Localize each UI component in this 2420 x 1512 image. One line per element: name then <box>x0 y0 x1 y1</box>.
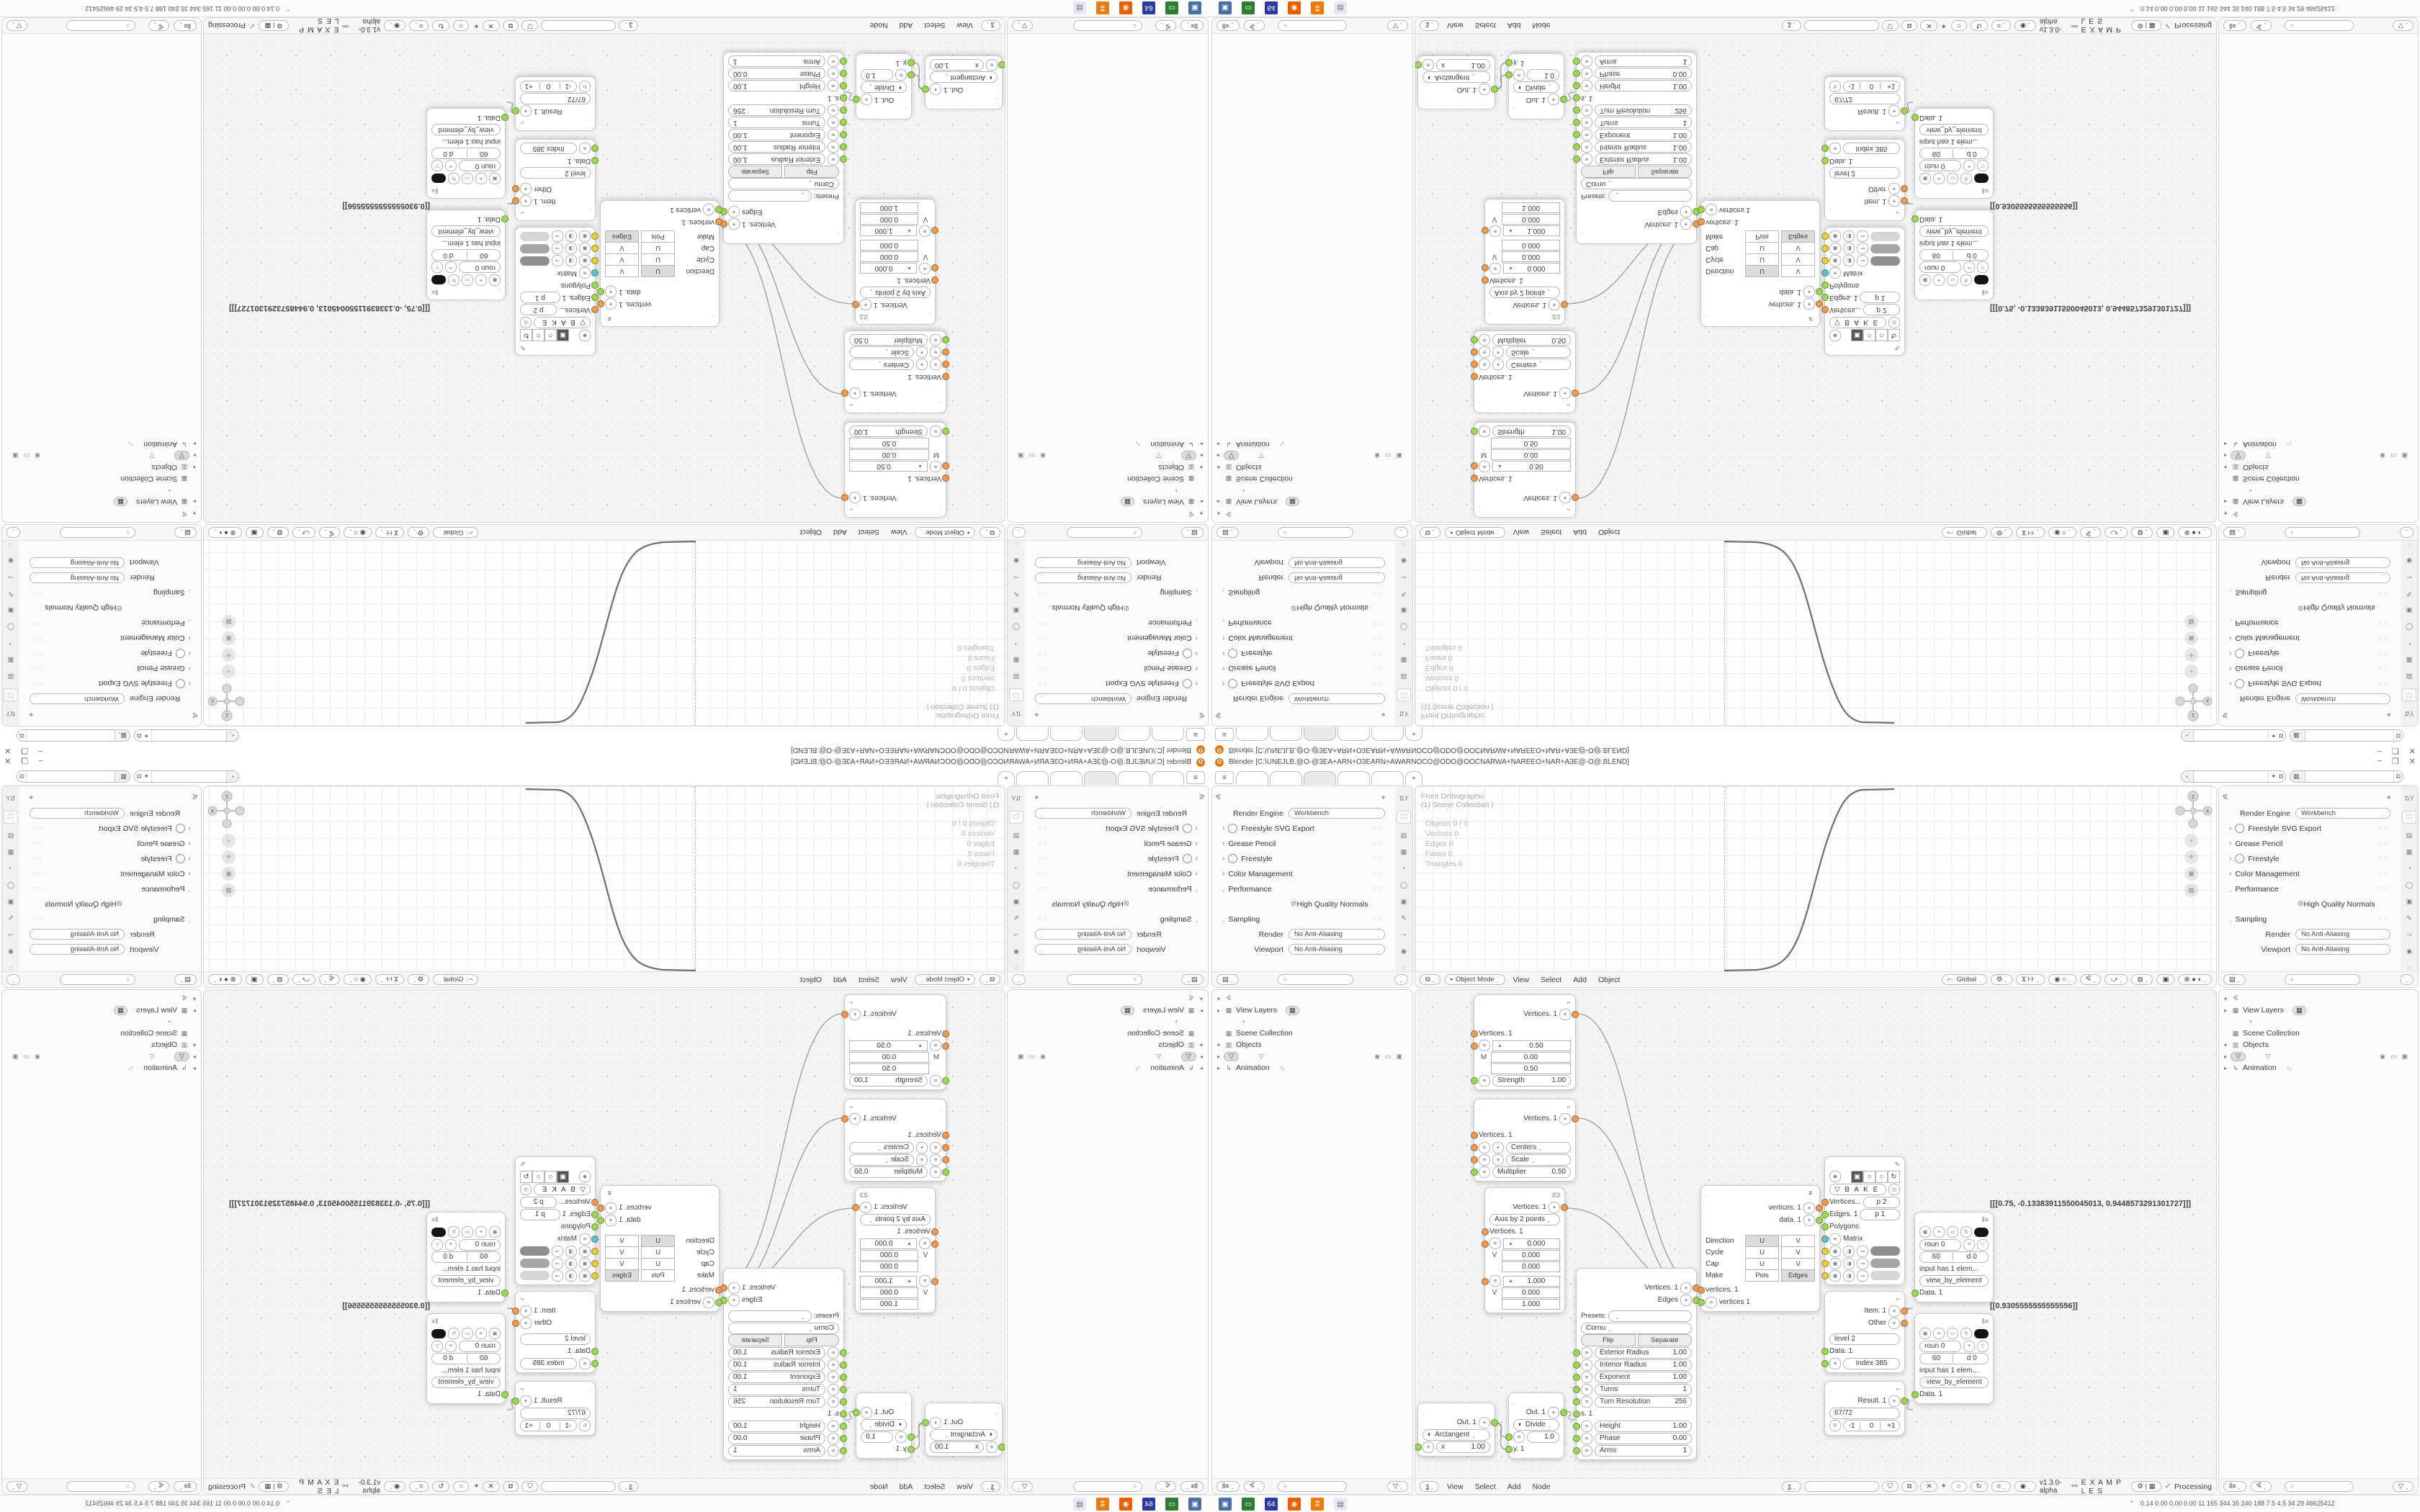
frame-mini-icon[interactable]: ▭ <box>462 274 473 286</box>
list-item-node[interactable]: ˯⌐Item. 1▾Other▾level 2Data. 1≋Index 385 <box>1824 1291 1905 1373</box>
make-edges-button[interactable]: Edges <box>605 1269 639 1282</box>
node-menu-view[interactable]: View <box>953 1482 977 1491</box>
select-dropdown[interactable]: Scale˯ <box>849 347 914 359</box>
formula-arctangent-node[interactable]: ˯Out. 1▾◐Arctangent˯≋x1.00 <box>1417 55 1495 109</box>
navigation-gizmo[interactable]: ZX <box>2173 789 2216 832</box>
properties-tab-icon[interactable]: ✎ <box>1010 590 1023 598</box>
search-input[interactable]: ⌕ <box>1067 527 1142 538</box>
outliner-item-view-layers[interactable]: ▸▦View Layers▦ <box>1214 496 1411 508</box>
section-freestyle[interactable]: ›Freestyle⁙⁙ <box>2222 646 2398 661</box>
node-socket-l[interactable] <box>591 1248 599 1255</box>
properties-tab-icon[interactable]: ◯ <box>4 881 17 889</box>
bake-button[interactable]: ▽B A K E <box>1829 317 1886 328</box>
overlay-toggle-button[interactable]: ⤻ ˯ <box>292 974 315 985</box>
node-socket-l[interactable] <box>1698 218 1705 225</box>
uv-connection-node[interactable]: ˯≢vertices. 1▾data. 1▾DirectionUVCycleUV… <box>1700 1185 1820 1312</box>
filter-mini-icon[interactable]: ▽ <box>431 161 443 172</box>
node-socket-l[interactable] <box>1573 58 1580 65</box>
node-menu-node[interactable]: Node <box>1528 1482 1554 1491</box>
make-pols-button[interactable]: Pols <box>1745 231 1779 243</box>
collapse-chevron-icon[interactable]: ˯ <box>498 188 501 194</box>
node-socket-l[interactable] <box>840 58 847 65</box>
viewport-menu-object[interactable]: Object <box>1595 528 1623 537</box>
number-field[interactable]: ▲0.000 <box>860 264 917 274</box>
view-by-element-button[interactable]: view_by_element <box>431 226 501 238</box>
viewlayer-selector-field[interactable]: ▦˯ ⧉ <box>17 770 130 783</box>
number-field[interactable]: Phase0.00 <box>728 68 825 80</box>
node-socket-l[interactable] <box>591 269 599 276</box>
cone-object-button[interactable]: ▽ <box>2231 1052 2246 1061</box>
editor-type-button[interactable]: ▤ ˯ <box>2223 527 2246 538</box>
tree-select-button[interactable]: ʓ ˯ <box>619 1481 638 1492</box>
section-grease-pencil[interactable]: ›Grease Pencil⁙⁙ <box>22 661 198 676</box>
outliner-item-scene-collection[interactable]: ▦Scene Collection <box>2220 473 2416 485</box>
value-field[interactable]: 67/72 <box>1829 94 1900 105</box>
properties-tab-icon[interactable]: ⤳ <box>1010 574 1023 582</box>
number-field[interactable]: ▲0.50 <box>1492 1040 1571 1051</box>
outliner-item-objects[interactable]: ▾▥Objects <box>2220 1039 2416 1050</box>
number-field[interactable]: Turns1 <box>728 117 825 129</box>
number-field[interactable]: 0.000 <box>860 1261 918 1272</box>
outliner-search-input[interactable]: ⌕ <box>2285 20 2354 31</box>
up-toggle-button[interactable]: ▲ <box>1508 1241 1513 1246</box>
split-left-value[interactable]: 60 <box>467 1354 501 1362</box>
node-socket-l[interactable] <box>501 215 508 222</box>
cone-object-button[interactable]: ▽ <box>174 451 189 461</box>
minimize-button[interactable]: − <box>2377 757 2381 766</box>
sampling-row-select[interactable]: No Anti-Aliasing˯ <box>2295 944 2390 955</box>
grid-toggle-icon[interactable]: ▦ <box>2184 883 2198 897</box>
collapse-chevron-icon[interactable]: ˯ <box>1479 999 1481 1006</box>
select-dropdown[interactable]: Centers˯ <box>849 1142 914 1153</box>
editor-type-button[interactable]: ▤ ˯ <box>1181 974 1204 985</box>
filter-mini-icon[interactable]: ▽ <box>431 1239 443 1251</box>
update-cycle-button[interactable]: ↻ <box>1971 1481 1988 1492</box>
collapse-chevron-icon[interactable]: ˯ <box>498 289 501 296</box>
node-socket-l[interactable] <box>1821 294 1829 301</box>
node-editor[interactable]: [[[0.75, -0.13383911550045013, 0.9448573… <box>203 17 1005 523</box>
sampling-row-select[interactable]: No Anti-Aliasing˯ <box>1035 557 1131 568</box>
search-input[interactable]: ⌕ <box>2285 527 2360 538</box>
dropdown-mini-button[interactable]: ▾ <box>916 359 928 371</box>
make-pols-button[interactable]: Pols <box>1745 1269 1779 1282</box>
scene-selector-field[interactable]: ◔˯ ✦⧉ <box>134 729 239 742</box>
properties-tab-icon[interactable]: 🗀 <box>2403 689 2416 701</box>
camera-icon[interactable]: ▣ <box>1018 1053 1024 1061</box>
collapse-chevron-icon[interactable]: ˯ <box>939 402 941 409</box>
dropdown-mini-button[interactable]: ▾ <box>728 207 740 218</box>
toggle-circle[interactable] <box>1183 854 1192 863</box>
value-field[interactable]: 67/72 <box>520 94 591 105</box>
outliner-item[interactable]: ▸▽▽◉▭▣ <box>4 1050 200 1062</box>
number-field[interactable]: Exponent1.00 <box>1595 130 1692 141</box>
options-chevron-button[interactable]: ˯ <box>6 527 20 538</box>
node-socket-l[interactable] <box>840 143 847 150</box>
monitor-icon[interactable]: ▭ <box>1029 1053 1036 1061</box>
number-field[interactable]: 0.000 <box>1502 240 1560 251</box>
list-mini-icon[interactable]: ≡ <box>1933 274 1945 286</box>
node-socket-r[interactable] <box>1572 1115 1579 1122</box>
uv-connection-node[interactable]: ˯≢vertices. 1▾data. 1▾DirectionUVCycleUV… <box>1700 200 1820 327</box>
grid-snap-button[interactable]: ⌗ ˯ <box>1991 1481 2011 1492</box>
number-field[interactable]: Turns1 <box>1595 117 1692 129</box>
options-chevron-button[interactable]: ˯ <box>6 974 20 985</box>
shading-select-button[interactable]: ✎̊ ˯ <box>2080 527 2102 538</box>
toggle-circle[interactable] <box>2235 679 2244 688</box>
outliner-item[interactable]: ▸▽▽◉▭▣ <box>1009 450 1206 462</box>
properties-tab-icon[interactable]: ▣ <box>4 898 17 906</box>
node-socket-l[interactable] <box>1698 1299 1705 1306</box>
viewport-content[interactable]: Front Orthographic(1) Scene Collection |… <box>1415 786 2216 971</box>
list-mini-icon[interactable]: ≡ <box>445 161 457 172</box>
node-socket-l[interactable] <box>591 294 599 301</box>
scale-node[interactable]: ˯⌐Vertices. 1▾Vertices. 1≋▾Centers˯≋▾Sca… <box>1474 1099 1576 1182</box>
up-toggle-button[interactable]: ▲ <box>1508 229 1513 234</box>
viewport-content[interactable]: Front Orthographic(1) Scene Collection |… <box>204 786 1005 971</box>
section-freestyle-svg-export[interactable]: ›Freestyle SVG Export⁙⁙ <box>1215 676 1392 691</box>
number-field[interactable]: ▲0.50 <box>849 462 928 472</box>
viewport-3d[interactable]: Front Orthographic(1) Scene Collection |… <box>203 524 1005 726</box>
dropdown-mini-button[interactable]: ▾ <box>1479 1417 1490 1428</box>
viewlayer-badge-button[interactable]: ▦ <box>1121 498 1134 507</box>
close-button[interactable]: ✕ <box>2409 746 2416 755</box>
list-mini-icon[interactable]: ≡ <box>1963 1239 1975 1251</box>
options-chevron-button[interactable]: ˯ <box>1394 974 1408 985</box>
number-field[interactable]: 0.000 <box>860 252 918 263</box>
input-value-pill[interactable]: Index 385 <box>1843 143 1900 155</box>
number-field[interactable]: Phase0.00 <box>728 1433 825 1444</box>
properties-tab-icon[interactable]: ▤ <box>2403 832 2416 840</box>
scene-selector-field[interactable]: ◔˯ ✦⧉ <box>2181 770 2286 783</box>
copy-button[interactable]: ⧉ <box>503 20 519 31</box>
dropdown-mini-button[interactable]: ▾ <box>1803 299 1815 310</box>
refresh-button[interactable]: ↻ <box>1888 1171 1900 1183</box>
number-field[interactable]: ▲1.000 <box>860 226 917 237</box>
stepper-plus1-button[interactable]: +1 <box>521 83 537 91</box>
node-socket-l[interactable] <box>591 1272 599 1279</box>
firefox-app-icon[interactable]: ◉ <box>1119 1 1132 14</box>
collapse-chevron-icon[interactable]: ˯ <box>837 233 839 240</box>
tree-select-button[interactable]: ʓ ˯ <box>619 20 638 31</box>
viewport-menu-view[interactable]: View <box>887 528 911 537</box>
properties-tab-icon[interactable]: ✎ <box>1010 914 1023 922</box>
node-socket-r[interactable] <box>922 1419 929 1426</box>
properties-tab-icon[interactable]: ⤳ <box>1397 574 1410 582</box>
editor-type-button[interactable]: ʓ ˯ <box>981 1481 1000 1492</box>
outliner-item[interactable]: ◔ <box>2220 485 2416 496</box>
dropdown-mini-button[interactable]: ▾ <box>728 1295 740 1306</box>
node-socket-l[interactable] <box>907 1446 915 1453</box>
collapse-chevron-icon[interactable]: ˯ <box>995 1408 998 1414</box>
outliner-item-animation[interactable]: ▸↳Animation⁴₂ <box>1009 438 1206 450</box>
properties-tab-icon[interactable]: ⇅Y <box>2403 795 2416 803</box>
monitor-icon[interactable]: ▭ <box>1385 452 1391 460</box>
shading-select-button[interactable]: ✎̊ ˯ <box>319 974 341 985</box>
formula-arctangent-node[interactable]: ˯Out. 1▾◐Arctangent˯≋x1.00 <box>1417 1403 1495 1457</box>
node-socket-l[interactable] <box>1471 1132 1478 1139</box>
outliner-item[interactable]: ◔ <box>4 485 200 496</box>
pin-icon[interactable]: ✦ <box>2271 773 2277 780</box>
loop-mini-icon[interactable]: ↻ <box>1829 81 1841 92</box>
direction-u-button[interactable]: U <box>641 266 675 278</box>
section-performance[interactable]: ˯Performance⁙⁙ <box>1028 881 1205 896</box>
dropdown-mini-button[interactable]: ▾ <box>1680 1282 1692 1294</box>
number-field[interactable]: Interior Radius1.00 <box>1595 142 1692 153</box>
node-socket-l[interactable] <box>1482 276 1489 284</box>
node-socket-l[interactable] <box>840 1410 847 1418</box>
tree-name-input[interactable] <box>1804 20 1879 31</box>
rounding-field[interactable]: roun 0 <box>459 262 501 274</box>
circle-button[interactable]: ○ <box>1863 1171 1875 1183</box>
color-swatch-black[interactable] <box>1974 276 1989 285</box>
expand-chevron-icon[interactable]: ⌃ <box>2129 4 2135 12</box>
node-menu-add[interactable]: Add <box>1504 1482 1525 1491</box>
toggle-circle[interactable] <box>2235 824 2244 833</box>
outliner-item[interactable]: ◔ <box>1214 485 1411 496</box>
copy-icon[interactable]: ⧉ <box>19 732 24 739</box>
node-editor[interactable]: [[[0.75, -0.13383911550045013, 0.9448573… <box>1415 17 2217 523</box>
render-engine-select[interactable]: Workbench˯ <box>30 693 125 704</box>
node-socket-l[interactable] <box>998 61 1005 68</box>
unlink-button[interactable]: ✕ <box>1920 20 1937 31</box>
cap-u-button[interactable]: U <box>1745 243 1779 255</box>
gear-grid-buttons[interactable]: ⚙ | ▦ <box>2131 20 2161 31</box>
number-field[interactable]: Arms1 <box>728 56 825 68</box>
viewport-menu-select[interactable]: Select <box>1537 976 1565 984</box>
monitor-icon[interactable]: ▭ <box>1029 452 1036 460</box>
sampling-row-select[interactable]: No Anti-Aliasing˯ <box>2295 557 2390 568</box>
workspace-tab[interactable] <box>1371 771 1404 785</box>
eye-icon[interactable]: ◉ <box>1374 452 1380 460</box>
stethoscope-viewer-node-1[interactable]: ˯⦀≡▣≡▭↻roun 0≡▽60d 0input has 1 elem...v… <box>1914 1212 1994 1302</box>
direction-v-button[interactable]: V <box>605 1235 639 1247</box>
outliner-item-view-layers[interactable]: ▸▦View Layers▦ <box>1214 1004 1411 1016</box>
camera-icon[interactable]: ▣ <box>2401 1053 2408 1061</box>
up-toggle-button[interactable]: ▲ <box>918 464 923 469</box>
properties-tab-icon[interactable]: 🗀 <box>4 689 17 701</box>
properties-tab-icon[interactable]: ⤳ <box>1397 931 1410 939</box>
dropdown-mini-button[interactable]: ▾ <box>1559 388 1571 400</box>
refresh-mini-icon[interactable]: ↻ <box>1960 173 1972 184</box>
overlay-toggle-button[interactable]: ⤻ ˯ <box>2105 527 2128 538</box>
refresh-button[interactable]: ↻ <box>520 330 532 342</box>
node-socket-l[interactable] <box>907 71 915 78</box>
value-field[interactable]: ˯ <box>1608 191 1692 202</box>
cube-button[interactable]: ▣ <box>557 1171 569 1183</box>
properties-tab-icon[interactable]: ⇅Y <box>4 709 17 717</box>
list-mini-icon[interactable]: ≡ <box>475 274 487 286</box>
stethoscope-viewer-node-2[interactable]: ˯⦀≡▣≡▭↻roun 0≡▽60d 0input has 1 elem...v… <box>426 108 506 199</box>
split-right-value[interactable]: d 0 <box>1956 150 1989 158</box>
node-socket-r[interactable] <box>1572 1011 1579 1018</box>
properties-tab-icon[interactable]: ▤ <box>1010 832 1023 840</box>
toggle-circle[interactable] <box>176 824 185 833</box>
number-field[interactable]: x1.00 <box>1436 60 1490 71</box>
node-socket-r[interactable] <box>1560 96 1567 103</box>
number-field[interactable]: Exterior Radius1.00 <box>1595 154 1692 166</box>
split-right-value[interactable]: d 0 <box>432 251 465 259</box>
frame-mini-icon[interactable]: ▭ <box>1947 1328 1958 1339</box>
dropdown-mini-button[interactable]: ▾ <box>1548 1407 1559 1418</box>
collapse-chevron-icon[interactable]: ˯ <box>1829 120 1832 127</box>
floppy-64-app-icon[interactable]: 64 <box>1142 1 1155 14</box>
stepper-plus1-button[interactable]: +1 <box>1883 1422 1899 1430</box>
solid-box-button[interactable]: ▣ <box>2156 974 2174 985</box>
split-left-value[interactable]: 60 <box>467 251 501 259</box>
filter-mini-icon[interactable]: ▽ <box>1977 161 1989 172</box>
copy-icon[interactable]: ⧉ <box>137 773 141 780</box>
number-field[interactable]: Strength1.00 <box>1492 426 1571 438</box>
rounding-field[interactable]: roun 0 <box>1919 262 1961 274</box>
dropdown-mini-button[interactable]: ▾ <box>1492 359 1504 371</box>
filter-funnel-button[interactable]: ▽ ˯ <box>2393 1481 2414 1492</box>
collapse-chevron-icon[interactable]: ˯ <box>1489 1192 1492 1199</box>
workspace-tab[interactable] <box>1304 727 1336 741</box>
shading-modes-button[interactable]: ⊕ ● ◐ ˯ <box>208 527 242 538</box>
outliner-item-animation[interactable]: ▸↳Animation⁴₂ <box>1214 438 1411 450</box>
expand-chevron-icon[interactable]: ⌃ <box>285 4 291 12</box>
formula-divide-node[interactable]: ˯Out. 1▾◐Divide˯≋1.0y. 1 <box>856 53 912 120</box>
number-field[interactable]: ▲0.000 <box>1503 264 1560 274</box>
list-mini-icon[interactable]: ≡ <box>1933 173 1945 184</box>
dropdown-mini-button[interactable]: ▾ <box>1680 1295 1692 1306</box>
properties-tab-icon[interactable]: ✎ <box>1397 914 1410 922</box>
filter-mini-icon[interactable]: ▽ <box>1977 262 1989 274</box>
node-socket-l[interactable] <box>1471 1077 1478 1084</box>
firefox-app-icon[interactable]: ◉ <box>1288 1498 1301 1511</box>
node-socket-l[interactable] <box>1482 1228 1489 1236</box>
node-socket-l[interactable] <box>1505 59 1512 66</box>
workspace-tab[interactable] <box>1236 727 1268 741</box>
number-field[interactable]: Multiplier0.50 <box>849 335 928 346</box>
camera-icon[interactable]: ▣ <box>12 452 19 460</box>
collapse-chevron-icon[interactable]: ˯ <box>1829 1386 1832 1392</box>
list-mini-icon[interactable]: ≡ <box>1933 1226 1945 1238</box>
floppy-64-app-icon[interactable]: 64 <box>1265 1 1278 14</box>
frame-mini-icon[interactable]: ▭ <box>462 1328 473 1339</box>
node-socket-l[interactable] <box>715 218 722 225</box>
bake-button[interactable]: ▽B A K E <box>534 317 591 328</box>
list-mini-icon[interactable]: ≡ <box>1933 1328 1945 1339</box>
node-socket-l[interactable] <box>840 70 847 77</box>
toggle-circle[interactable] <box>1228 679 1237 688</box>
stepper-minus1-button[interactable]: -1 <box>560 83 576 91</box>
gear-grid-buttons[interactable]: ⚙ | ▦ <box>259 20 288 31</box>
search-input[interactable]: ⌕ <box>60 974 135 985</box>
loop-mini-icon[interactable]: ↻ <box>1829 1420 1841 1431</box>
sampling-row-select[interactable]: No Anti-Aliasing˯ <box>1289 944 1385 955</box>
number-field[interactable]: Interior Radius1.00 <box>728 1359 825 1371</box>
node-socket-l[interactable] <box>1912 114 1919 121</box>
pin-icon[interactable]: ✦ <box>1381 710 1386 718</box>
node-socket-l[interactable] <box>1821 269 1829 276</box>
dropdown-mini-button[interactable]: ▾ <box>861 94 872 106</box>
orientation-select-button[interactable]: ⌐˒Global˯ <box>433 974 478 985</box>
up-toggle-button[interactable]: ▲ <box>1508 266 1513 271</box>
toggle-circle[interactable] <box>1228 854 1237 863</box>
node-socket-r[interactable] <box>841 390 848 397</box>
properties-tab-icon[interactable]: ◯ <box>1010 881 1023 889</box>
node-socket-l[interactable] <box>1821 1236 1829 1243</box>
notepad-app-icon[interactable]: ▤ <box>1073 1498 1086 1511</box>
camera-icon[interactable]: ▣ <box>2401 452 2408 460</box>
section-performance[interactable]: ˯Performance⁙⁙ <box>2222 616 2398 631</box>
list-item-node[interactable]: ˯⌐Item. 1▾Other▾level 2Data. 1≋Index 385 <box>1824 139 1905 221</box>
high-quality-normals-row[interactable]: ⊘High Quality Normals <box>22 896 198 912</box>
properties-tab-icon[interactable]: ◌ <box>1010 541 1023 549</box>
blank-circle-button[interactable]: ○ <box>453 20 469 31</box>
outliner-item-scene-collection[interactable]: ▦Scene Collection <box>1214 473 1411 485</box>
maximize-button[interactable]: ❐ <box>2392 746 2399 755</box>
viewport-menu-view[interactable]: View <box>1510 528 1533 537</box>
number-field[interactable]: Strength1.00 <box>849 426 928 438</box>
node-socket-r[interactable] <box>1816 1205 1823 1212</box>
number-field[interactable]: 0.50 <box>1491 438 1571 449</box>
window-titlebar[interactable]: Blender [C:\UNEJLB.@O-@3EA+ARN+O3EARN+AW… <box>1210 744 2420 756</box>
value-field[interactable]: ˯ <box>728 191 812 202</box>
dropdown-mini-button[interactable]: ▾ <box>1479 84 1490 96</box>
node-socket-l[interactable] <box>1471 373 1478 380</box>
node-socket-l[interactable] <box>931 1228 938 1236</box>
number-field[interactable]: 1.000 <box>860 203 918 214</box>
node-socket-r[interactable] <box>1901 185 1908 192</box>
node-socket-l[interactable] <box>942 336 949 343</box>
node-socket-r[interactable] <box>1491 86 1498 93</box>
collapse-chevron-icon[interactable]: ˯ <box>498 1318 501 1325</box>
update-cycle-button[interactable]: ↻ <box>432 1481 449 1492</box>
properties-tab-icon[interactable]: ◔ <box>1397 865 1410 873</box>
slider-pill[interactable] <box>520 244 550 253</box>
outliner-item[interactable]: ▸▽▽◉▭▣ <box>2220 450 2416 462</box>
node-editor[interactable]: [[[0.75, -0.13383911550045013, 0.9448573… <box>1415 989 2217 1495</box>
node-socket-l[interactable] <box>840 1349 847 1356</box>
pin-icon[interactable]: ✦ <box>473 1483 479 1490</box>
toggle-circle[interactable] <box>1183 824 1192 833</box>
dropdown-mini-button[interactable]: ▾ <box>1492 1142 1504 1153</box>
number-field[interactable]: 1.0 <box>1527 70 1559 81</box>
viewport-menu-select[interactable]: Select <box>855 976 883 984</box>
number-field[interactable]: Phase0.00 <box>1595 68 1692 80</box>
node-socket-l[interactable] <box>1573 1386 1580 1393</box>
mode-select-button[interactable]: ▪Object Mode˯ <box>1445 974 1505 985</box>
sampling-row-select[interactable]: No Anti-Aliasing˯ <box>30 572 125 583</box>
viewlayer-badge-button[interactable]: ▦ <box>114 498 127 507</box>
slider-pill[interactable] <box>520 1246 550 1256</box>
dropdown-mini-button[interactable]: ▾ <box>916 1142 928 1153</box>
noise-displace-node[interactable]: ˯⌐Vertices. 1▾Vertices. 1≋▲0.50M0.000.50… <box>1474 994 1576 1090</box>
node-socket-l[interactable] <box>840 156 847 163</box>
node-socket-l[interactable] <box>942 1077 949 1084</box>
section-grease-pencil[interactable]: ›Grease Pencil⁙⁙ <box>22 836 198 851</box>
cone-object-button[interactable]: ▽ <box>2231 451 2246 461</box>
workspace-tab[interactable] <box>1236 771 1268 785</box>
node-socket-r[interactable] <box>1816 1217 1823 1224</box>
cap-u-button[interactable]: U <box>1745 1258 1779 1270</box>
view-by-element-button[interactable]: view_by_element <box>1919 125 1989 136</box>
refresh-mini-icon[interactable]: ↻ <box>1960 274 1972 286</box>
toggle-circle[interactable] <box>1183 679 1192 688</box>
dropdown-mini-button[interactable]: ▾ <box>1559 1113 1571 1125</box>
zoom-tool-icon[interactable]: + <box>2184 665 2198 678</box>
up-toggle-button[interactable]: ▲ <box>907 1279 912 1284</box>
proportional-edit-button[interactable]: ◉ ○ ˯ <box>344 527 371 538</box>
dropdown-mini-button[interactable]: ▾ <box>916 1154 928 1166</box>
list-mini-icon[interactable]: ≡ <box>445 1239 457 1251</box>
filter-funnel-button[interactable]: ▽ ˯ <box>1387 1481 1408 1492</box>
pan-hand-icon[interactable]: ✛ <box>222 850 236 864</box>
window-titlebar[interactable]: Blender [C:\UNEJLB.@O-@3EA+ARN+O3EARN+AW… <box>0 744 1210 756</box>
dropdown-mini-button[interactable]: ▾ <box>1888 196 1900 207</box>
